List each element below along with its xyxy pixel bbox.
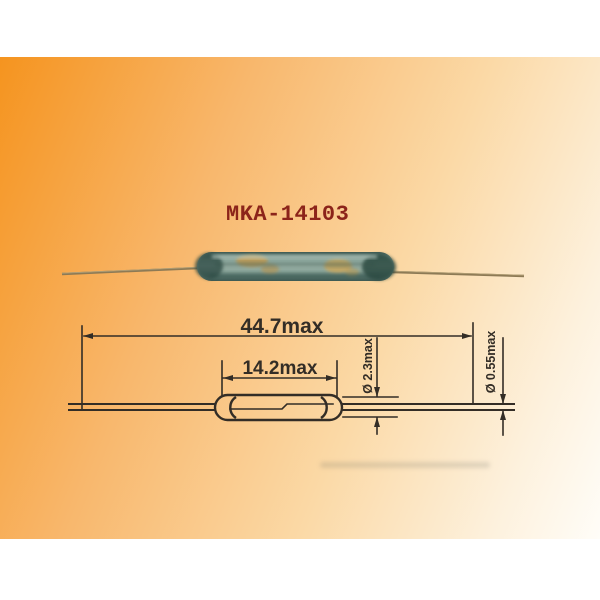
glass-length-value: 14.2max <box>242 358 317 379</box>
photo-lead-wire-left <box>62 268 199 274</box>
lead-diameter-dimension: Ø 0.55max <box>484 331 506 435</box>
glass-length-dimension: 14.2max <box>222 358 337 396</box>
glass-end-arc-right <box>321 397 327 418</box>
product-image: MKA-14103 <box>0 0 600 600</box>
faint-watermark <box>320 462 490 468</box>
dimension-drawing: 44.7max 14.2max <box>0 308 600 453</box>
lead-diameter-value: Ø 0.55max <box>484 331 498 394</box>
orange-gradient-background <box>0 57 600 539</box>
glass-end-arc-left <box>230 397 236 418</box>
reed-contact-overlap-line <box>230 404 333 409</box>
overall-length-value: 44.7max <box>241 315 324 338</box>
photo-glass-capsule <box>195 252 396 281</box>
glass-diameter-value: Ø 2.3max <box>361 338 375 394</box>
photo-lead-wire-right <box>392 272 524 276</box>
model-number-label: MKA-14103 <box>226 202 376 227</box>
glass-diameter-dimension: Ø 2.3max <box>343 338 398 434</box>
reed-switch-outline <box>68 395 515 420</box>
reed-switch-photo <box>0 245 600 290</box>
